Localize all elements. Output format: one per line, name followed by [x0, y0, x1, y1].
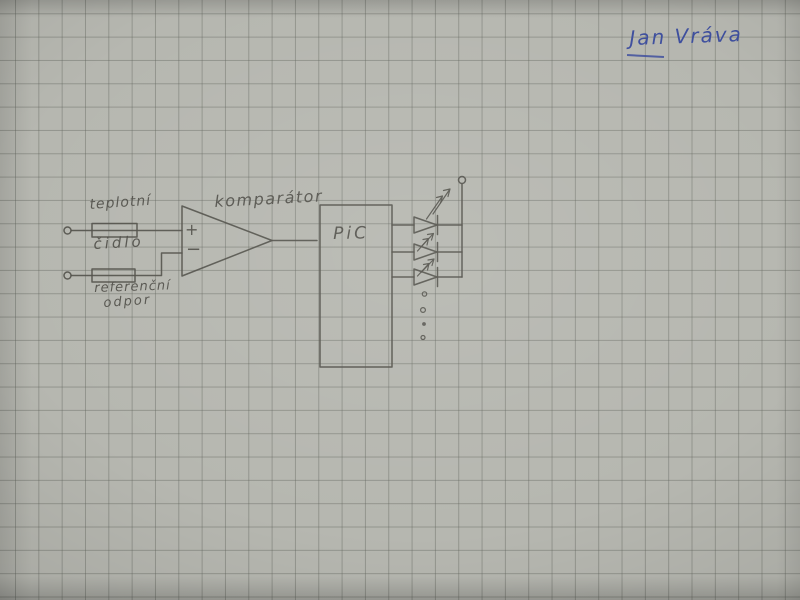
comparator-minus-input-label: −: [186, 239, 201, 260]
led-3-icon: [414, 259, 462, 287]
supply-terminal-icon: [459, 177, 466, 184]
led-1-icon: [414, 189, 462, 235]
label-pic: PiC: [333, 223, 369, 244]
signature: Jan Vráva: [629, 22, 743, 50]
label-temperature-line2: čidlo: [93, 232, 144, 253]
input-terminal-top-icon: [64, 227, 71, 234]
wire-minus-input: [72, 253, 183, 276]
graph-paper-photo: teplotní čidlo referenční odpor komparát…: [0, 0, 800, 600]
input-terminal-bottom-icon: [64, 272, 71, 279]
comparator-plus-input-label: +: [185, 220, 198, 239]
ellipsis-dots-icon: [421, 292, 427, 340]
led-2-icon: [414, 234, 462, 262]
